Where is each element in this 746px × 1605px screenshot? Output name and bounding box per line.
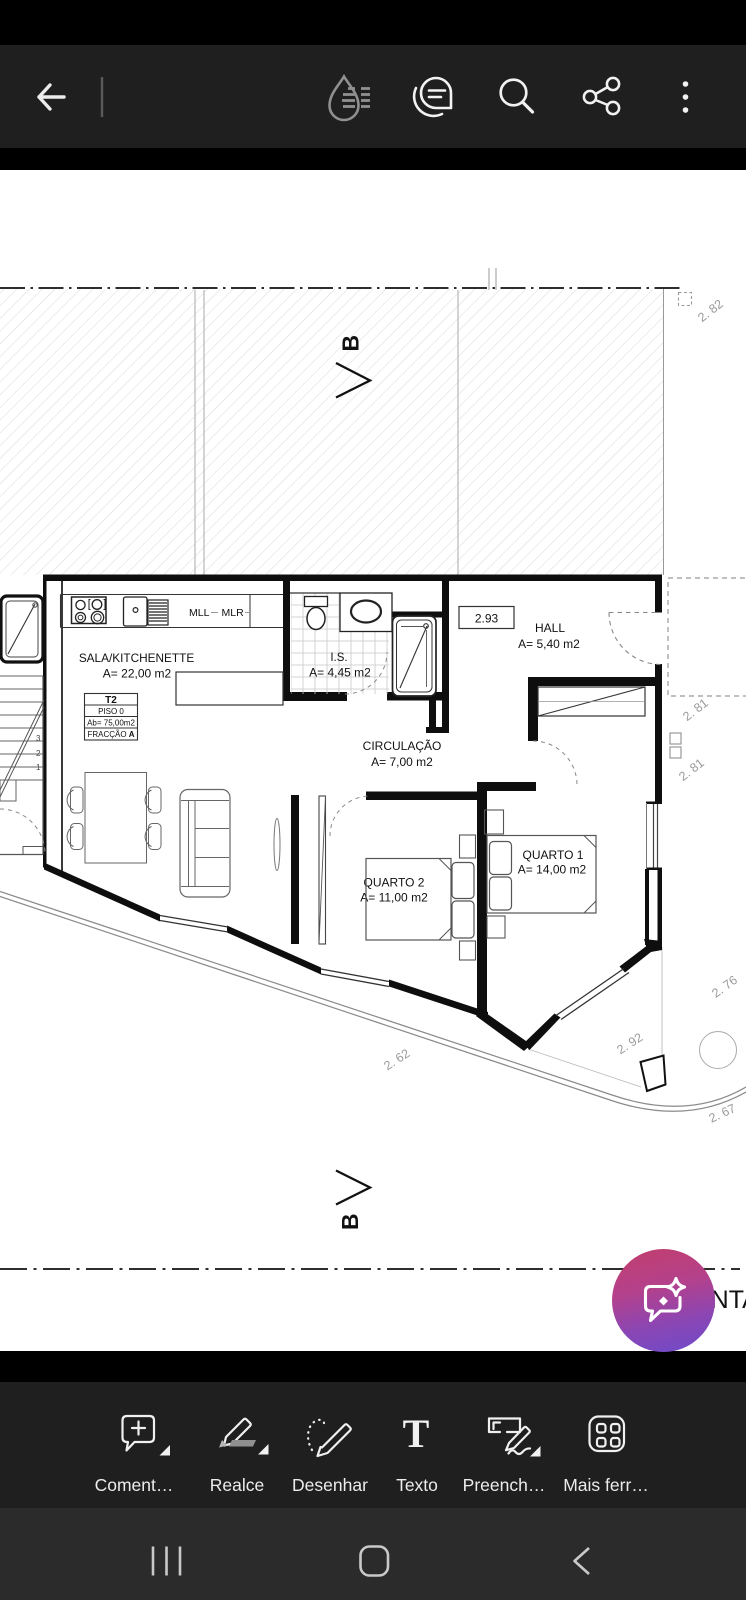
svg-text:Desenhar: Desenhar [292, 1475, 368, 1495]
svg-text:QUARTO 1: QUARTO 1 [523, 848, 584, 862]
svg-text:Mais ferr…: Mais ferr… [563, 1475, 649, 1495]
svg-text:A= 4,45 m2: A= 4,45 m2 [309, 666, 371, 680]
svg-text:2. 82: 2. 82 [695, 297, 726, 325]
svg-text:3: 3 [36, 734, 41, 743]
svg-text:T2: T2 [105, 695, 117, 706]
svg-text:SALA/KITCHENETTE: SALA/KITCHENETTE [79, 651, 195, 665]
svg-text:HALL: HALL [535, 621, 565, 635]
svg-text:FRACÇÃO A: FRACÇÃO A [87, 730, 134, 739]
svg-text:Preench…: Preench… [463, 1475, 546, 1495]
svg-text:Ab= 75,00m2: Ab= 75,00m2 [87, 719, 135, 728]
svg-text:2. 62: 2. 62 [381, 1046, 412, 1073]
svg-text:2. 92: 2. 92 [614, 1030, 645, 1057]
svg-text:2.93: 2.93 [475, 612, 499, 626]
svg-text:QUARTO 2: QUARTO 2 [364, 876, 425, 890]
svg-text:2: 2 [36, 749, 41, 758]
svg-text:I.S.: I.S. [330, 652, 347, 664]
svg-text:PISO 0: PISO 0 [98, 707, 124, 716]
svg-text:A= 22,00 m2: A= 22,00 m2 [103, 667, 172, 681]
svg-text:A= 7,00 m2: A= 7,00 m2 [371, 755, 433, 769]
svg-text:A= 5,40 m2: A= 5,40 m2 [518, 637, 580, 651]
svg-text:Texto: Texto [396, 1475, 438, 1495]
svg-text:B: B [338, 335, 364, 352]
svg-text:2. 67: 2. 67 [707, 1101, 738, 1125]
svg-text:2. 81: 2. 81 [680, 696, 711, 724]
svg-text:2. 76: 2. 76 [709, 973, 740, 1001]
svg-text:MLL: MLL [189, 607, 210, 619]
svg-text:CIRCULAÇÃO: CIRCULAÇÃO [363, 739, 442, 753]
svg-text:A= 11,00 m2: A= 11,00 m2 [360, 891, 428, 905]
svg-text:2. 81: 2. 81 [676, 756, 707, 784]
svg-text:B: B [337, 1213, 363, 1230]
svg-text:Realce: Realce [210, 1475, 264, 1495]
svg-text:T: T [403, 1411, 430, 1456]
svg-text:MLR: MLR [222, 607, 245, 619]
svg-text:Coment…: Coment… [95, 1475, 174, 1495]
svg-text:A= 14,00 m2: A= 14,00 m2 [518, 863, 587, 877]
svg-text:1: 1 [36, 763, 41, 772]
